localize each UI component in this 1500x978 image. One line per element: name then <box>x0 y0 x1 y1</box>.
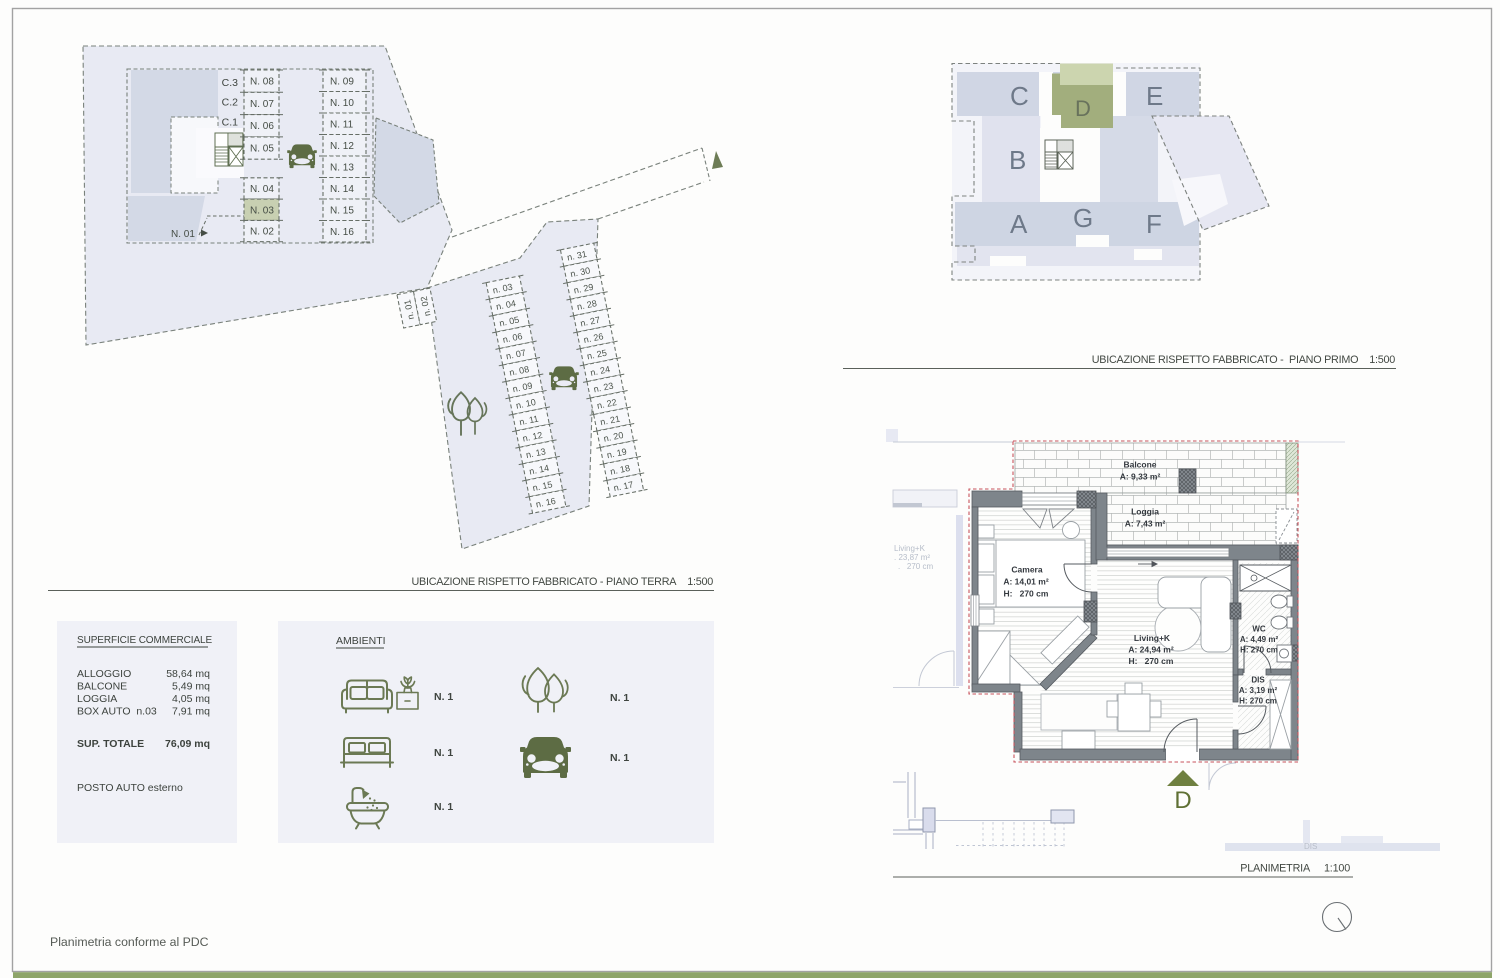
svg-text:G: G <box>1073 203 1093 233</box>
svg-text:BALCONE: BALCONE <box>77 681 127 693</box>
svg-text:PLANIMETRIA 1:100: PLANIMETRIA 1:100 <box>1240 863 1350 875</box>
svg-text:A: 7,43 m²: A: 7,43 m² <box>1125 519 1166 529</box>
svg-text:N. 07: N. 07 <box>250 99 274 110</box>
svg-text:58,64 mq: 58,64 mq <box>166 668 210 680</box>
svg-text:E: E <box>1146 81 1163 111</box>
svg-text:Balcone: Balcone <box>1123 460 1156 470</box>
svg-text:N. 01: N. 01 <box>171 229 195 240</box>
svg-text:N. 1: N. 1 <box>434 801 453 813</box>
svg-text:N. 1: N. 1 <box>610 752 629 764</box>
svg-text:N. 10: N. 10 <box>330 98 354 109</box>
svg-text:A: 24,94 m²: A: 24,94 m² <box>1128 645 1174 655</box>
svg-text:Living+K: Living+K <box>894 544 926 553</box>
svg-text:N. 1: N. 1 <box>434 691 453 703</box>
svg-text:N. 1: N. 1 <box>434 747 453 759</box>
svg-text:76,09 mq: 76,09 mq <box>165 738 210 750</box>
svg-text:D: D <box>1075 96 1091 121</box>
svg-text:. 23,87 m²: . 23,87 m² <box>894 553 930 562</box>
svg-text:H: 270 cm: H: 270 cm <box>1129 656 1174 666</box>
svg-text:D: D <box>1174 787 1191 814</box>
svg-text:A: 3,19 m²: A: 3,19 m² <box>1239 686 1278 695</box>
svg-text:ALLOGGIO: ALLOGGIO <box>77 668 131 680</box>
svg-text:POSTO AUTO esterno: POSTO AUTO esterno <box>77 782 183 794</box>
svg-text:SUP. TOTALE: SUP. TOTALE <box>77 738 144 750</box>
svg-text:UBICAZIONE RISPETTO FABBRICATO: UBICAZIONE RISPETTO FABBRICATO - PIANO P… <box>1092 354 1396 366</box>
svg-text:SUPERFICIE COMMERCIALE: SUPERFICIE COMMERCIALE <box>77 635 212 646</box>
svg-text:C.1: C.1 <box>222 117 239 129</box>
svg-text:H: 270 cm: H: 270 cm <box>1004 589 1049 599</box>
svg-text:N. 14: N. 14 <box>330 184 354 195</box>
svg-text:WC: WC <box>1252 625 1266 634</box>
svg-text:C: C <box>1010 81 1029 111</box>
svg-text:DIS: DIS <box>1251 676 1265 685</box>
svg-text:N. 03: N. 03 <box>250 205 274 216</box>
svg-text:N. 13: N. 13 <box>330 162 354 173</box>
svg-text:LOGGIA: LOGGIA <box>77 693 117 705</box>
svg-text:N. 15: N. 15 <box>330 205 354 216</box>
svg-text:H: 270 cm: H: 270 cm <box>1239 697 1277 706</box>
svg-text:C.2: C.2 <box>222 97 239 109</box>
svg-text:4,05 mq: 4,05 mq <box>172 693 210 705</box>
svg-text:N. 02: N. 02 <box>250 227 274 238</box>
svg-text:H: 270 cm: H: 270 cm <box>1240 646 1278 655</box>
svg-text:UBICAZIONE RISPETTO FABBRICATO: UBICAZIONE RISPETTO FABBRICATO - PIANO T… <box>411 576 713 588</box>
svg-text:Living+K: Living+K <box>1134 633 1171 643</box>
svg-text:DIS: DIS <box>1304 842 1317 851</box>
svg-text:A: 4,49 m²: A: 4,49 m² <box>1240 635 1279 644</box>
svg-text:A: 9,33 m²: A: 9,33 m² <box>1120 472 1161 482</box>
svg-text:N. 11: N. 11 <box>330 119 354 130</box>
svg-text:N. 06: N. 06 <box>250 121 274 132</box>
svg-text:N. 09: N. 09 <box>330 76 354 87</box>
svg-text:N. 05: N. 05 <box>250 143 274 154</box>
svg-text:Planimetria conforme al PDC: Planimetria conforme al PDC <box>50 935 209 949</box>
svg-text:F: F <box>1146 209 1162 239</box>
svg-text:N. 08: N. 08 <box>250 77 274 88</box>
svg-text:C.3: C.3 <box>222 77 239 89</box>
svg-text:A: A <box>1010 209 1028 239</box>
svg-text:7,91 mq: 7,91 mq <box>172 706 210 718</box>
svg-text:5,49 mq: 5,49 mq <box>172 681 210 693</box>
svg-text:N. 12: N. 12 <box>330 141 354 152</box>
svg-text:B: B <box>1009 145 1026 175</box>
svg-text:N. 04: N. 04 <box>250 184 274 195</box>
svg-text:N. 16: N. 16 <box>330 227 354 238</box>
svg-text:. 270 cm: . 270 cm <box>898 562 933 571</box>
svg-text:BOX AUTO n.03: BOX AUTO n.03 <box>77 706 157 718</box>
svg-text:A: 14,01 m²: A: 14,01 m² <box>1003 577 1049 587</box>
svg-text:Camera: Camera <box>1011 565 1042 575</box>
svg-text:Loggia: Loggia <box>1131 507 1159 517</box>
svg-text:AMBIENTI: AMBIENTI <box>336 635 386 647</box>
svg-text:N. 1: N. 1 <box>610 692 629 704</box>
